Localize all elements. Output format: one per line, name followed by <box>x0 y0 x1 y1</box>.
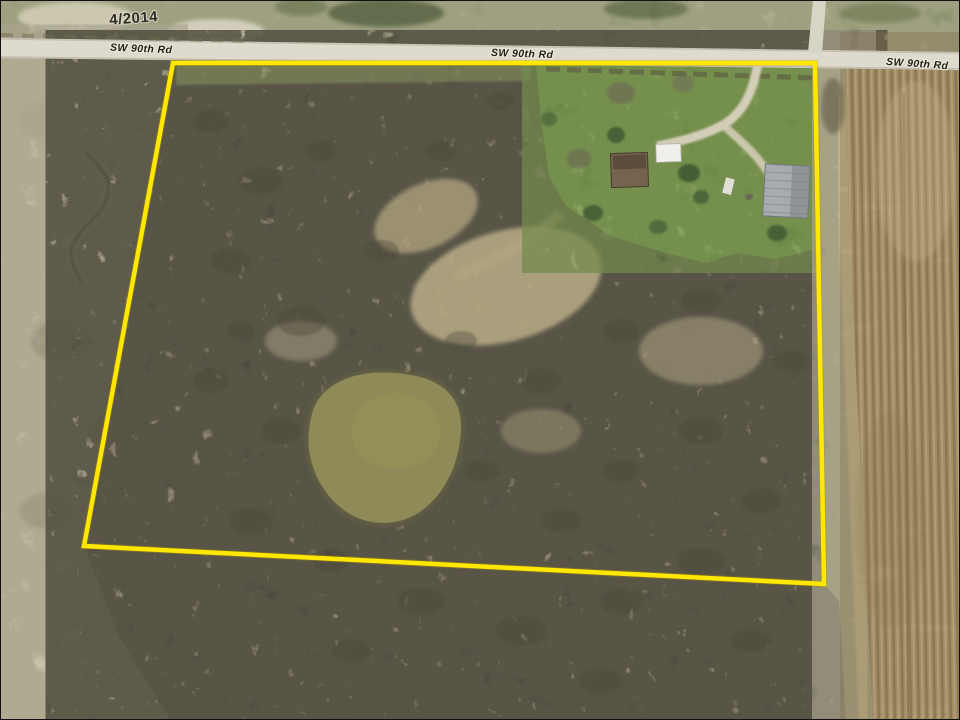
house-roof-ridge <box>613 154 646 169</box>
yard-object <box>745 194 753 200</box>
field-light-patch <box>876 81 956 261</box>
east-brush <box>821 78 845 134</box>
road-label-center: SW 90th Rd <box>491 47 554 61</box>
white-shed <box>656 144 682 163</box>
field-dark-patch <box>856 411 926 631</box>
aerial-imagery-viewport: 4/2014 SW 90th Rd SW 90th Rd SW 90th Rd <box>0 0 960 720</box>
metal-barn <box>763 164 811 218</box>
imagery-date-watermark: 4/2014 <box>109 8 159 28</box>
aerial-scene: 4/2014 SW 90th Rd SW 90th Rd SW 90th Rd <box>1 1 960 720</box>
